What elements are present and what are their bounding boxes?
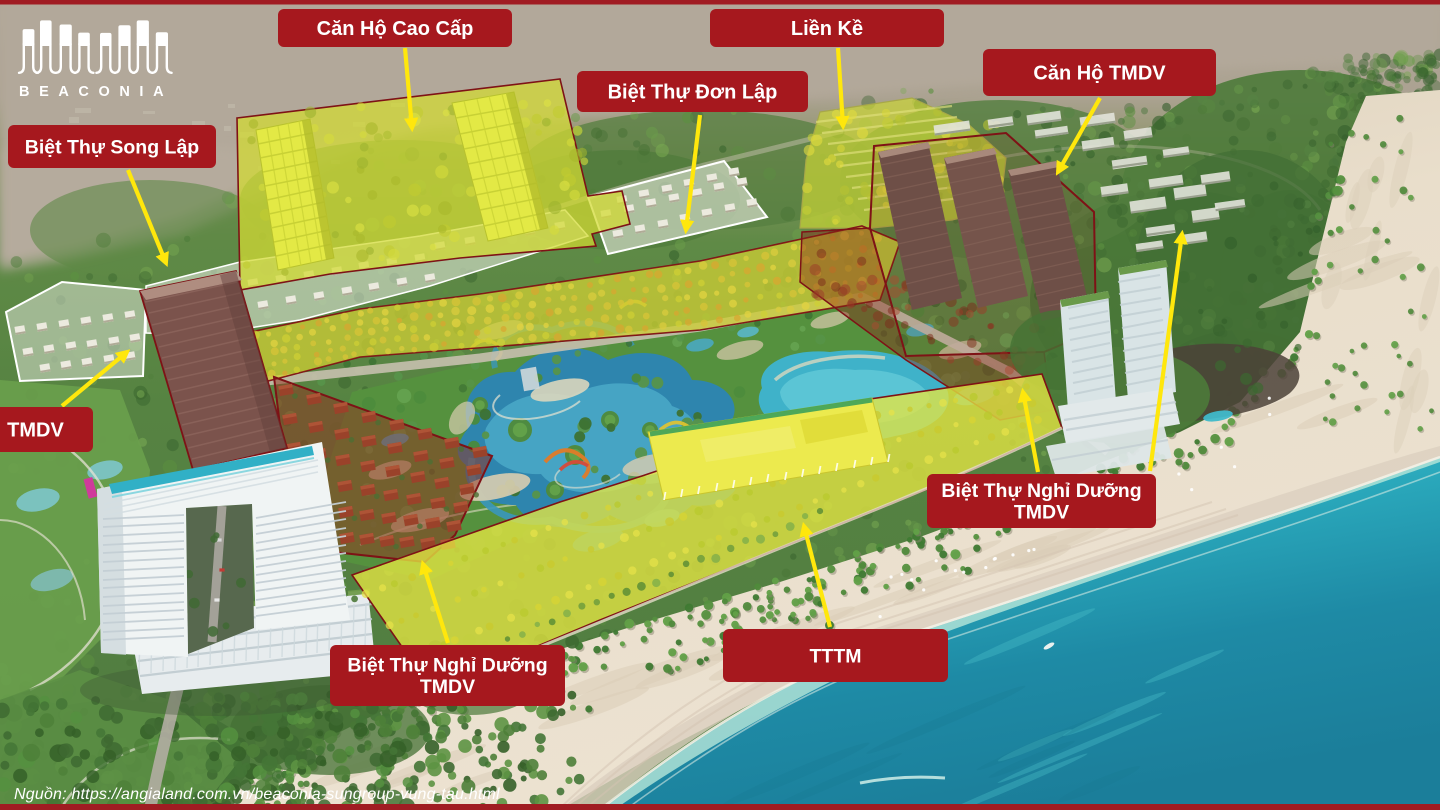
svg-text:Liền Kề: Liền Kề [791, 18, 863, 40]
svg-text:Nguồn: https://angialand.com.v: Nguồn: https://angialand.com.vn/beaconia… [14, 786, 500, 803]
svg-text:Biệt Thự Đơn Lập: Biệt Thự Đơn Lập [608, 82, 778, 104]
svg-text:TMDV: TMDV [1014, 502, 1069, 524]
svg-text:Biệt Thự Nghỉ Dưỡng: Biệt Thự Nghỉ Dưỡng [941, 480, 1141, 502]
svg-text:Căn Hộ TMDV: Căn Hộ TMDV [1033, 63, 1166, 85]
svg-text:Biệt Thự Song Lập: Biệt Thự Song Lập [25, 136, 200, 158]
svg-text:TMDV: TMDV [420, 676, 475, 698]
svg-text:TMDV: TMDV [7, 420, 64, 442]
svg-text:TTTM: TTTM [810, 645, 862, 667]
svg-text:BEACONIA: BEACONIA [19, 84, 173, 100]
svg-text:Căn Hộ Cao Cấp: Căn Hộ Cao Cấp [317, 18, 474, 40]
svg-text:Biệt Thự Nghỉ Dưỡng: Biệt Thự Nghỉ Dưỡng [347, 655, 547, 677]
